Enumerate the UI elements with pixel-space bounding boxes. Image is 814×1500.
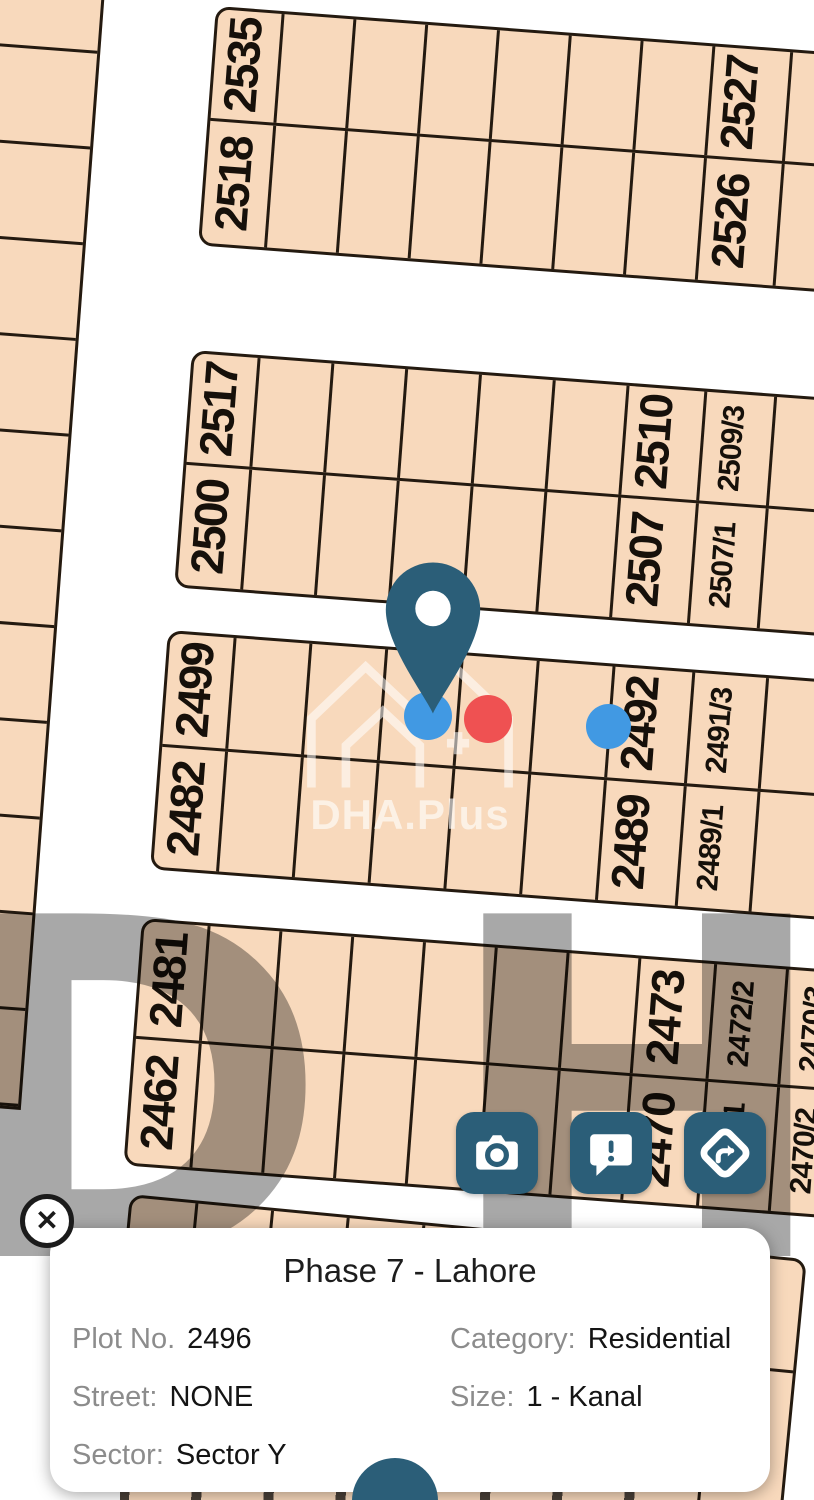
plot-number-label: 2517 <box>192 361 245 459</box>
plot-cell[interactable] <box>761 678 814 795</box>
plot-block: 251725102509/3250025072507/1 <box>174 350 814 638</box>
plot-number-label: 2500 <box>183 478 236 576</box>
plot-number-label: 2489/1 <box>693 804 729 892</box>
plot-cell[interactable] <box>420 25 500 139</box>
plot-number-label: 2489 <box>604 794 657 892</box>
plot-cell[interactable]: 2507 <box>612 498 699 624</box>
plot-cell[interactable] <box>0 809 40 916</box>
plot-number-label: 2482 <box>159 760 212 858</box>
plot-cell[interactable] <box>554 147 635 274</box>
plot-cell[interactable] <box>274 932 354 1052</box>
card-row: Street: NONE Size: 1 - Kanal <box>72 1368 752 1426</box>
plot-cell[interactable] <box>0 522 61 629</box>
plot-cell[interactable]: 2535 <box>211 9 285 123</box>
plot-cell[interactable] <box>252 358 334 472</box>
plot-cell[interactable] <box>626 153 707 280</box>
plot-cell[interactable]: 2489 <box>598 780 687 906</box>
street-field: Street: NONE <box>72 1381 450 1414</box>
plot-cell[interactable] <box>295 758 380 883</box>
plot-cell[interactable] <box>219 752 304 877</box>
plot-cell[interactable]: 2507/1 <box>690 503 769 628</box>
plot-cell[interactable] <box>348 20 428 134</box>
plot-map-screen: 2535252725182526251725102509/32500250725… <box>0 0 814 1500</box>
category-field: Category: Residential <box>450 1323 731 1356</box>
plot-cell[interactable] <box>0 43 97 150</box>
street-value: NONE <box>169 1381 253 1414</box>
plot-number-label: 2481 <box>142 932 195 1030</box>
plot-cell[interactable] <box>411 137 492 264</box>
close-icon: ✕ <box>35 1207 58 1235</box>
plot-cell[interactable] <box>202 926 282 1046</box>
plot-number-label: 2509/3 <box>714 404 750 492</box>
category-value: Residential <box>588 1323 731 1356</box>
plot-cell[interactable] <box>0 1000 25 1107</box>
pin-icon <box>374 560 492 716</box>
card-title: Phase 7 - Lahore <box>50 1252 770 1290</box>
blue-marker-dot[interactable] <box>586 704 631 749</box>
plot-cell[interactable]: 2472/2 <box>709 964 789 1084</box>
left-plot-strip <box>0 0 108 1110</box>
plot-cell[interactable] <box>635 41 715 155</box>
map-action-bar <box>456 1112 766 1194</box>
plot-cell[interactable]: 2509/3 <box>699 392 777 506</box>
plot-cell[interactable] <box>0 905 32 1012</box>
plot-cell[interactable] <box>0 713 47 820</box>
feedback-icon <box>586 1128 636 1178</box>
card-fields: Plot No. 2496 Category: Residential Stre… <box>72 1310 752 1484</box>
plot-number-label: 2535 <box>216 17 269 115</box>
plot-cell[interactable] <box>492 30 572 144</box>
plot-number-label: 2510 <box>627 394 680 492</box>
plot-cell[interactable] <box>228 638 312 754</box>
plot-cell[interactable]: 2526 <box>698 158 785 286</box>
plot-number-label: 2507 <box>618 511 671 609</box>
plot-cell[interactable] <box>561 953 641 1073</box>
plot-number-label: 2470/3 <box>795 985 814 1073</box>
plot-cell[interactable] <box>400 369 482 483</box>
plot-no-field: Plot No. 2496 <box>72 1323 450 1356</box>
plot-cell[interactable] <box>760 509 814 635</box>
category-label: Category: <box>450 1323 576 1356</box>
plot-cell[interactable]: 2517 <box>187 353 261 467</box>
plot-cell[interactable] <box>336 1055 417 1184</box>
plot-cell[interactable]: 2462 <box>127 1039 202 1168</box>
camera-icon <box>472 1128 522 1178</box>
plot-cell[interactable] <box>276 14 356 128</box>
plot-cell[interactable] <box>0 426 68 533</box>
plot-cell[interactable]: 2510 <box>621 386 707 501</box>
plot-number-label: 2526 <box>704 172 757 270</box>
plot-cell[interactable]: 2482 <box>153 747 228 872</box>
plot-cell[interactable] <box>264 1049 345 1178</box>
plot-cell[interactable] <box>482 142 563 269</box>
plot-cell[interactable] <box>192 1044 273 1173</box>
plot-cell[interactable]: 2500 <box>177 465 252 590</box>
plot-cell[interactable] <box>564 36 644 150</box>
plot-cell[interactable] <box>489 948 569 1068</box>
plot-number-label: 2527 <box>713 54 766 152</box>
plot-no-value: 2496 <box>187 1323 252 1356</box>
plot-no-label: Plot No. <box>72 1323 175 1356</box>
plot-number-label: 2499 <box>168 642 221 740</box>
plot-cell[interactable] <box>474 375 556 489</box>
card-row: Plot No. 2496 Category: Residential <box>72 1310 752 1368</box>
plot-number-label: 2470/2 <box>786 1107 814 1195</box>
plot-cell[interactable] <box>346 937 426 1057</box>
plot-cell[interactable] <box>243 470 326 595</box>
size-label: Size: <box>450 1381 514 1414</box>
plot-number-label: 2462 <box>133 1054 186 1152</box>
sector-value: Sector Y <box>176 1439 287 1472</box>
plot-number-label: 2473 <box>639 969 692 1067</box>
plot-cell[interactable] <box>417 942 497 1062</box>
sector-label: Sector: <box>72 1439 164 1472</box>
plot-cell[interactable] <box>769 397 814 512</box>
plot-number-label: 2518 <box>207 135 260 233</box>
plot-cell[interactable] <box>371 763 456 888</box>
plot-cell[interactable]: 2518 <box>201 121 276 248</box>
plot-number-label: 2472/2 <box>724 980 760 1068</box>
plot-cell[interactable] <box>548 380 630 494</box>
plot-cell[interactable] <box>267 126 348 253</box>
plot-cell[interactable] <box>522 775 607 900</box>
plot-cell[interactable] <box>538 492 621 617</box>
plot-cell[interactable] <box>0 330 76 437</box>
plot-cell[interactable] <box>0 0 104 54</box>
camera-button[interactable] <box>456 1112 538 1194</box>
plot-info-card: Phase 7 - Lahore Plot No. 2496 Category:… <box>50 1228 770 1492</box>
plot-cell[interactable] <box>339 131 420 258</box>
close-card-button[interactable]: ✕ <box>20 1194 74 1248</box>
directions-icon <box>698 1126 752 1180</box>
plot-cell[interactable] <box>0 617 54 724</box>
street-label: Street: <box>72 1381 157 1414</box>
plot-cell[interactable] <box>446 769 531 894</box>
plot-cell[interactable] <box>752 792 814 918</box>
feedback-button[interactable] <box>570 1112 652 1194</box>
map-pin-marker[interactable] <box>374 560 492 721</box>
directions-button[interactable] <box>684 1112 766 1194</box>
size-field: Size: 1 - Kanal <box>450 1381 643 1414</box>
plot-number-label: 2507/1 <box>705 522 741 610</box>
plot-cell[interactable]: 2527 <box>707 47 793 162</box>
plot-number-label: 2491/3 <box>702 686 738 774</box>
plot-block: 2535252725182526 <box>198 6 814 296</box>
plot-cell[interactable] <box>0 139 90 246</box>
plot-cell[interactable]: 2491/3 <box>687 673 769 789</box>
size-value: 1 - Kanal <box>526 1381 642 1414</box>
plot-cell[interactable] <box>326 364 408 478</box>
plot-cell[interactable]: 2473 <box>633 959 717 1079</box>
plot-cell[interactable]: 2489/1 <box>678 786 761 911</box>
plot-cell[interactable]: 2499 <box>162 633 236 749</box>
plot-cell[interactable] <box>0 234 83 341</box>
plot-cell[interactable]: 2481 <box>136 921 210 1041</box>
